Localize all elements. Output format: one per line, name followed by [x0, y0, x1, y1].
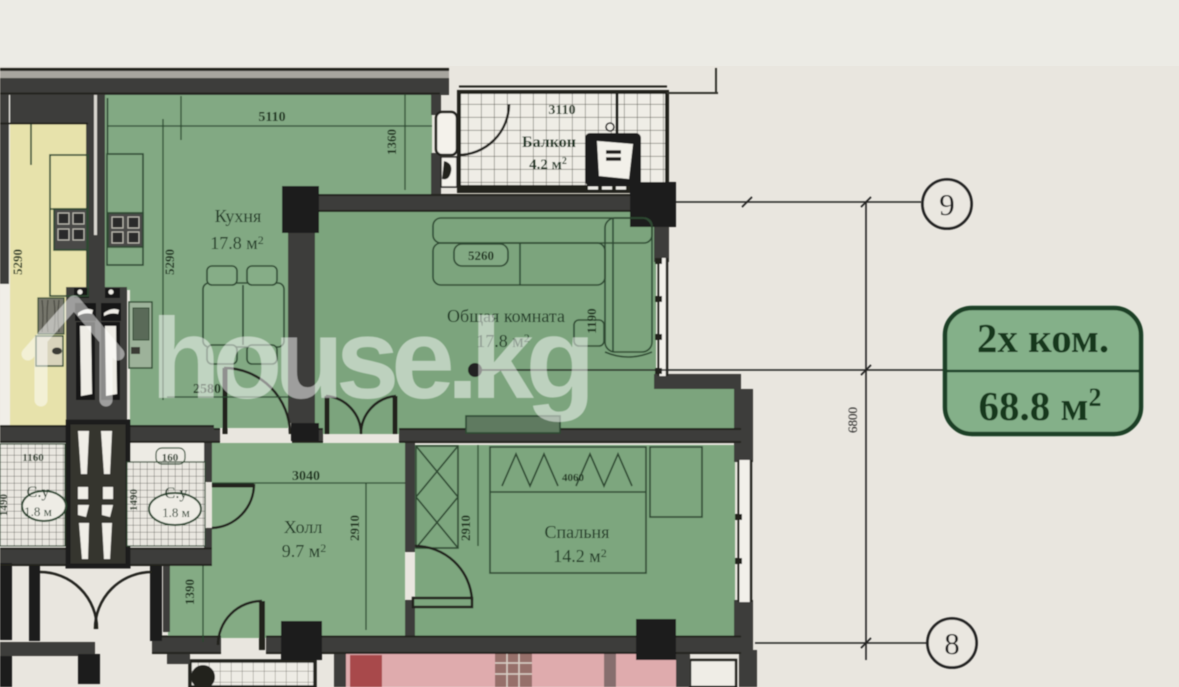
svg-text:3110: 3110	[548, 103, 575, 118]
svg-text:1.8 м: 1.8 м	[24, 504, 52, 519]
svg-text:1390: 1390	[182, 579, 197, 605]
svg-text:С.у: С.у	[27, 484, 50, 501]
svg-text:5110: 5110	[258, 110, 285, 125]
svg-text:Кухня: Кухня	[215, 206, 262, 226]
svg-text:Балкон: Балкон	[522, 134, 576, 151]
svg-text:1490: 1490	[0, 494, 10, 517]
svg-text:1.8 м: 1.8 м	[162, 505, 190, 520]
svg-text:house.kg: house.kg	[151, 296, 589, 423]
svg-text:5260: 5260	[468, 248, 494, 263]
svg-text:2х ком.: 2х ком.	[977, 315, 1109, 361]
svg-text:9: 9	[939, 187, 955, 222]
svg-text:14.2 м2: 14.2 м2	[553, 546, 606, 566]
svg-text:6800: 6800	[845, 407, 860, 433]
svg-text:2910: 2910	[347, 515, 362, 541]
svg-text:160: 160	[162, 452, 179, 464]
svg-text:1160: 1160	[22, 452, 44, 464]
svg-text:9.7 м2: 9.7 м2	[282, 541, 326, 561]
svg-text:8: 8	[944, 626, 960, 661]
svg-text:3040: 3040	[292, 469, 320, 484]
svg-text:С.у: С.у	[165, 485, 188, 502]
svg-text:1490: 1490	[128, 489, 140, 512]
svg-text:5290: 5290	[10, 249, 25, 275]
svg-text:5290: 5290	[162, 249, 177, 275]
svg-text:4.2 м2: 4.2 м2	[529, 156, 567, 173]
svg-text:Спальня: Спальня	[545, 522, 610, 542]
svg-text:1360: 1360	[384, 129, 399, 155]
svg-text:17.8 м2: 17.8 м2	[210, 233, 263, 253]
svg-text:4060: 4060	[562, 472, 585, 484]
svg-text:68.8 м2: 68.8 м2	[979, 383, 1102, 429]
svg-text:2910: 2910	[458, 515, 473, 541]
svg-text:Холл: Холл	[284, 517, 323, 537]
